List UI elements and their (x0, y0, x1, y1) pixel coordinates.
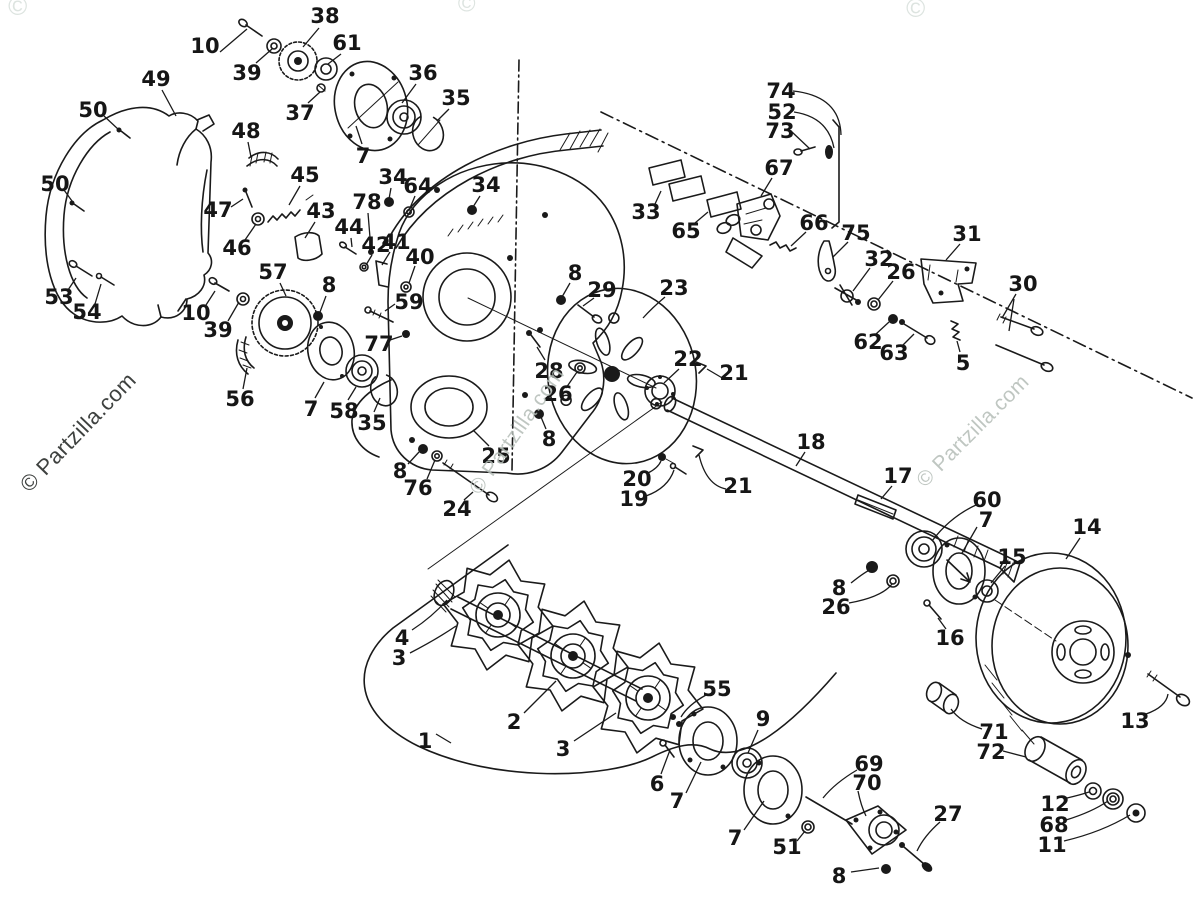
part-number-label: 6 (650, 772, 665, 796)
part-number-label: 61 (332, 31, 361, 55)
leader-line (1002, 294, 1016, 318)
bolt-20 (658, 453, 666, 461)
track-outline-1 (364, 545, 836, 774)
leader-line (1066, 801, 1108, 820)
leader-line (524, 681, 556, 713)
part-number-label: 22 (673, 347, 702, 371)
part-number-label: 54 (72, 300, 101, 324)
part-number-label: 16 (935, 626, 964, 650)
part-number-label: 33 (631, 200, 660, 224)
part-number-label: 2 (507, 710, 522, 734)
leader-line (792, 132, 810, 149)
pin-77 (402, 330, 410, 338)
part-number-label: 63 (879, 341, 908, 365)
bolt-10 (246, 25, 262, 36)
leader-line (962, 527, 977, 553)
part-number-label: 49 (141, 67, 170, 91)
case-opening-lower (411, 376, 487, 438)
part-number-label: 29 (587, 278, 616, 302)
bolt-30b (996, 345, 1044, 365)
leader-line (661, 750, 670, 774)
leader-line (849, 584, 892, 603)
part-number-label: 7 (670, 789, 685, 813)
part-number-label: 55 (702, 677, 731, 701)
part-number-label: 76 (403, 476, 432, 500)
washer-68 (1103, 789, 1123, 809)
washer-12 (1085, 783, 1101, 799)
part-number-label: 18 (796, 430, 825, 454)
part-number-label: 24 (442, 497, 471, 521)
leader-line (410, 626, 456, 653)
bolt-63 (904, 324, 927, 338)
part-number-label: 62 (853, 330, 882, 354)
part-number-label: 8 (568, 261, 583, 285)
part-number-label: 3 (556, 737, 571, 761)
clip-21-lower (693, 446, 703, 457)
part-number-label: 7 (979, 508, 994, 532)
leader-line (794, 112, 834, 148)
leader-line (932, 505, 976, 541)
part-number-label: 31 (952, 222, 981, 246)
part-number-label: 37 (285, 101, 314, 125)
part-number-label: 21 (719, 361, 748, 385)
part-number-label: 7 (728, 826, 743, 850)
leader-line (220, 29, 247, 52)
leader-line (851, 569, 872, 583)
spring-66 (770, 242, 796, 251)
part-number-label: 3 (392, 646, 407, 670)
leader-line (320, 296, 326, 312)
part-number-label: 50 (78, 98, 107, 122)
part-number-label: 7 (356, 144, 371, 168)
part-number-label: 30 (1008, 272, 1037, 296)
washer-26-right (887, 575, 899, 587)
part-number-label: 26 (886, 260, 915, 284)
spider-clips (561, 313, 661, 421)
washer-61 (315, 58, 337, 80)
leader-line (562, 283, 570, 297)
spring-45 (268, 210, 300, 222)
washer-46 (252, 213, 264, 225)
bolt-13 (1148, 674, 1180, 697)
spring-5 (951, 321, 960, 340)
part-number-label: 23 (659, 276, 688, 300)
part-number-label: 36 (408, 61, 437, 85)
clip-52 (825, 145, 833, 159)
pin-47 (246, 192, 252, 207)
leader-line (351, 238, 352, 247)
leader-line (699, 455, 726, 489)
part-number-label: 8 (322, 273, 337, 297)
exploded-parts-diagram: 1039386137736354950485045474643444241783… (0, 0, 1200, 908)
shoe-43 (295, 233, 322, 261)
part-number-label: 34 (471, 173, 500, 197)
part-number-label: 35 (357, 411, 386, 435)
watermark-right: © Partzilla.com (912, 370, 1034, 492)
part-number-label: 8 (832, 864, 847, 888)
track-sprocket-2 (518, 601, 628, 711)
leader-line (917, 822, 940, 851)
part-number-label: 53 (44, 285, 73, 309)
bolt-29 (578, 305, 594, 317)
part-number-label: 27 (933, 802, 962, 826)
part-number-label: 9 (756, 707, 771, 731)
bolt-16 (929, 605, 941, 619)
part-number-label: 65 (671, 219, 700, 243)
lever-75 (818, 241, 835, 281)
leader-line (436, 734, 451, 743)
part-number-label: 17 (883, 464, 912, 488)
part-number-label: 45 (290, 163, 319, 187)
part-number-label: 15 (997, 545, 1026, 569)
part-number-label: 47 (203, 198, 232, 222)
part-number-label: 8 (542, 427, 557, 451)
bearing-58 (346, 355, 378, 387)
leader-line (796, 452, 805, 466)
leader-line (473, 196, 480, 207)
parts-diagram-page: 1039386137736354950485045474643444241783… (0, 0, 1200, 908)
part-number-label: 78 (352, 190, 381, 214)
bushing-71 (924, 680, 961, 716)
part-number-label: 39 (232, 61, 261, 85)
leader-line (356, 126, 362, 144)
part-number-label: 14 (1072, 515, 1101, 539)
leader-line (853, 268, 870, 291)
part-number-label: 35 (441, 86, 470, 110)
leader-line (1064, 815, 1130, 841)
bracket-67 (716, 194, 780, 268)
part-number-label: 72 (976, 740, 1005, 764)
leader-line (408, 452, 419, 464)
leader-line (303, 28, 319, 47)
part-number-label: 51 (772, 835, 801, 859)
watermark-top-circle-2: © (458, 0, 476, 18)
part-number-label: 58 (329, 399, 358, 423)
part-number-label: 40 (405, 245, 434, 269)
watermark-top-circle-3: © (906, 0, 926, 23)
bolt-10-lower (215, 283, 229, 291)
part-number-label: 77 (364, 332, 393, 356)
washer-51 (802, 821, 814, 833)
arrow-mark (947, 560, 970, 582)
part-group-hub-plate (806, 797, 934, 874)
flange-7-bottom-2 (744, 756, 802, 824)
leader-line (289, 186, 300, 205)
leader-line (231, 199, 243, 207)
bolt-28 (531, 335, 540, 347)
part-number-label: 39 (203, 318, 232, 342)
part-number-label: 13 (1120, 709, 1149, 733)
part-number-label: 57 (258, 260, 287, 284)
part-number-label: 46 (222, 236, 251, 260)
part-number-label: 43 (306, 199, 335, 223)
leader-line (437, 109, 449, 121)
part-group-bearing-60 (866, 531, 998, 619)
bolt-53 (76, 266, 92, 276)
part-number-label: 75 (841, 221, 870, 245)
leader-line (1003, 751, 1026, 757)
leader-line (851, 868, 879, 872)
nut-8-bottom (881, 864, 891, 874)
bolt-50-upper (121, 131, 130, 138)
track-sprocket-3 (593, 643, 703, 753)
case-opening-upper (423, 253, 511, 341)
part-number-label: 67 (764, 156, 793, 180)
bolt-44 (345, 247, 356, 254)
bolt-50-lower (74, 204, 84, 211)
track-sprocket-1 (443, 560, 553, 670)
nut-62 (888, 314, 898, 324)
part-number-label: 70 (852, 771, 881, 795)
part-group-track-shaft (364, 545, 836, 774)
watermark-bottom-left: © Partzilla.com (15, 367, 141, 496)
track-sprockets (443, 560, 703, 753)
bolt-27 (904, 847, 924, 864)
part-number-label: 44 (334, 215, 363, 239)
bolt-19 (675, 467, 686, 474)
part-number-label: 59 (394, 290, 423, 314)
part-group-case-hardware (418, 295, 603, 504)
nut-8-top (556, 295, 566, 305)
leader-line (248, 142, 251, 157)
rack-56 (236, 337, 254, 374)
spacer-55 (670, 714, 676, 720)
part-number-label: 7 (304, 397, 319, 421)
pin-54 (101, 277, 114, 285)
nut-8-lower (418, 444, 428, 454)
rod-74 (832, 120, 839, 228)
watermark-top-circle-1: © (8, 0, 28, 21)
part-number-label: 48 (231, 119, 260, 143)
part-number-label: 19 (619, 487, 648, 511)
construction-lines (428, 60, 1192, 641)
part-number-label: 1 (418, 729, 433, 753)
nut-34-right (467, 205, 477, 215)
part-number-label: 56 (225, 387, 254, 411)
stud-69 (806, 797, 852, 824)
leader-line (574, 713, 616, 741)
part-group-bottom-flanges (660, 707, 814, 833)
part-number-label: 5 (956, 351, 971, 375)
washer-76 (432, 451, 442, 461)
flange-7-bottom-1 (679, 707, 737, 775)
part-number-label: 64 (403, 174, 432, 198)
part-group-drum-14 (924, 553, 1192, 822)
leader-line (412, 600, 447, 630)
part-number-label: 21 (723, 474, 752, 498)
leader-line (1066, 538, 1080, 559)
dash-line-drum (995, 600, 1056, 641)
nut-8-mid (313, 311, 323, 321)
leader-line (305, 222, 315, 238)
part-number-label: 73 (765, 119, 794, 143)
part-number-label: 38 (310, 4, 339, 28)
part-number-label: 50 (40, 172, 69, 196)
leader-line (315, 382, 324, 398)
pad-65 (707, 192, 741, 217)
part-number-label: 66 (799, 211, 828, 235)
leader-line (951, 709, 982, 729)
part-number-label: 10 (190, 34, 219, 58)
part-number-label: 26 (821, 595, 850, 619)
leader-line (946, 244, 960, 260)
part-number-label: 11 (1037, 833, 1066, 857)
